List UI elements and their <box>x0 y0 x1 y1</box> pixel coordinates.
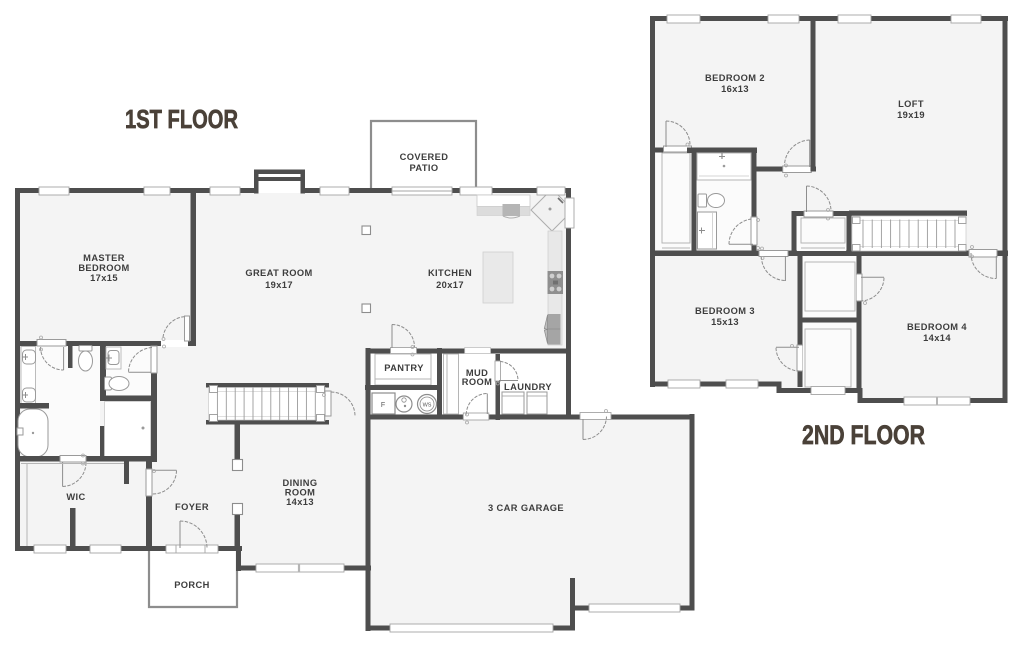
svg-text:WIC: WIC <box>66 492 85 502</box>
svg-text:ROOM: ROOM <box>285 488 316 498</box>
svg-text:MASTER: MASTER <box>83 253 125 263</box>
svg-text:20x17: 20x17 <box>436 280 464 290</box>
svg-text:BEDROOM 2: BEDROOM 2 <box>705 73 765 83</box>
svg-text:GREAT ROOM: GREAT ROOM <box>245 268 312 278</box>
svg-text:BEDROOM 4: BEDROOM 4 <box>907 322 967 332</box>
svg-text:LOFT: LOFT <box>898 99 924 109</box>
svg-text:17x15: 17x15 <box>90 273 118 283</box>
svg-text:14x13: 14x13 <box>286 497 314 507</box>
svg-text:ROOM: ROOM <box>462 377 493 387</box>
svg-text:2ND FLOOR: 2ND FLOOR <box>802 420 925 450</box>
svg-text:3 CAR GARAGE: 3 CAR GARAGE <box>488 503 564 513</box>
svg-text:DINING: DINING <box>283 478 318 488</box>
svg-text:COVERED: COVERED <box>400 152 449 162</box>
svg-text:19x19: 19x19 <box>897 110 925 120</box>
svg-text:BEDROOM 3: BEDROOM 3 <box>695 306 755 316</box>
svg-text:1ST FLOOR: 1ST FLOOR <box>125 104 238 134</box>
svg-text:BEDROOM: BEDROOM <box>78 263 129 273</box>
svg-text:16x13: 16x13 <box>721 84 749 94</box>
svg-text:PANTRY: PANTRY <box>384 363 424 373</box>
svg-text:14x14: 14x14 <box>923 333 951 343</box>
svg-text:KITCHEN: KITCHEN <box>428 268 472 278</box>
svg-text:15x13: 15x13 <box>711 317 739 327</box>
svg-text:PORCH: PORCH <box>174 580 210 590</box>
svg-text:F: F <box>381 402 385 409</box>
svg-text:PATIO: PATIO <box>409 163 438 173</box>
svg-text:FOYER: FOYER <box>175 502 209 512</box>
svg-text:19x17: 19x17 <box>265 280 293 290</box>
svg-text:WS: WS <box>423 403 432 409</box>
svg-text:LAUNDRY: LAUNDRY <box>504 382 552 392</box>
